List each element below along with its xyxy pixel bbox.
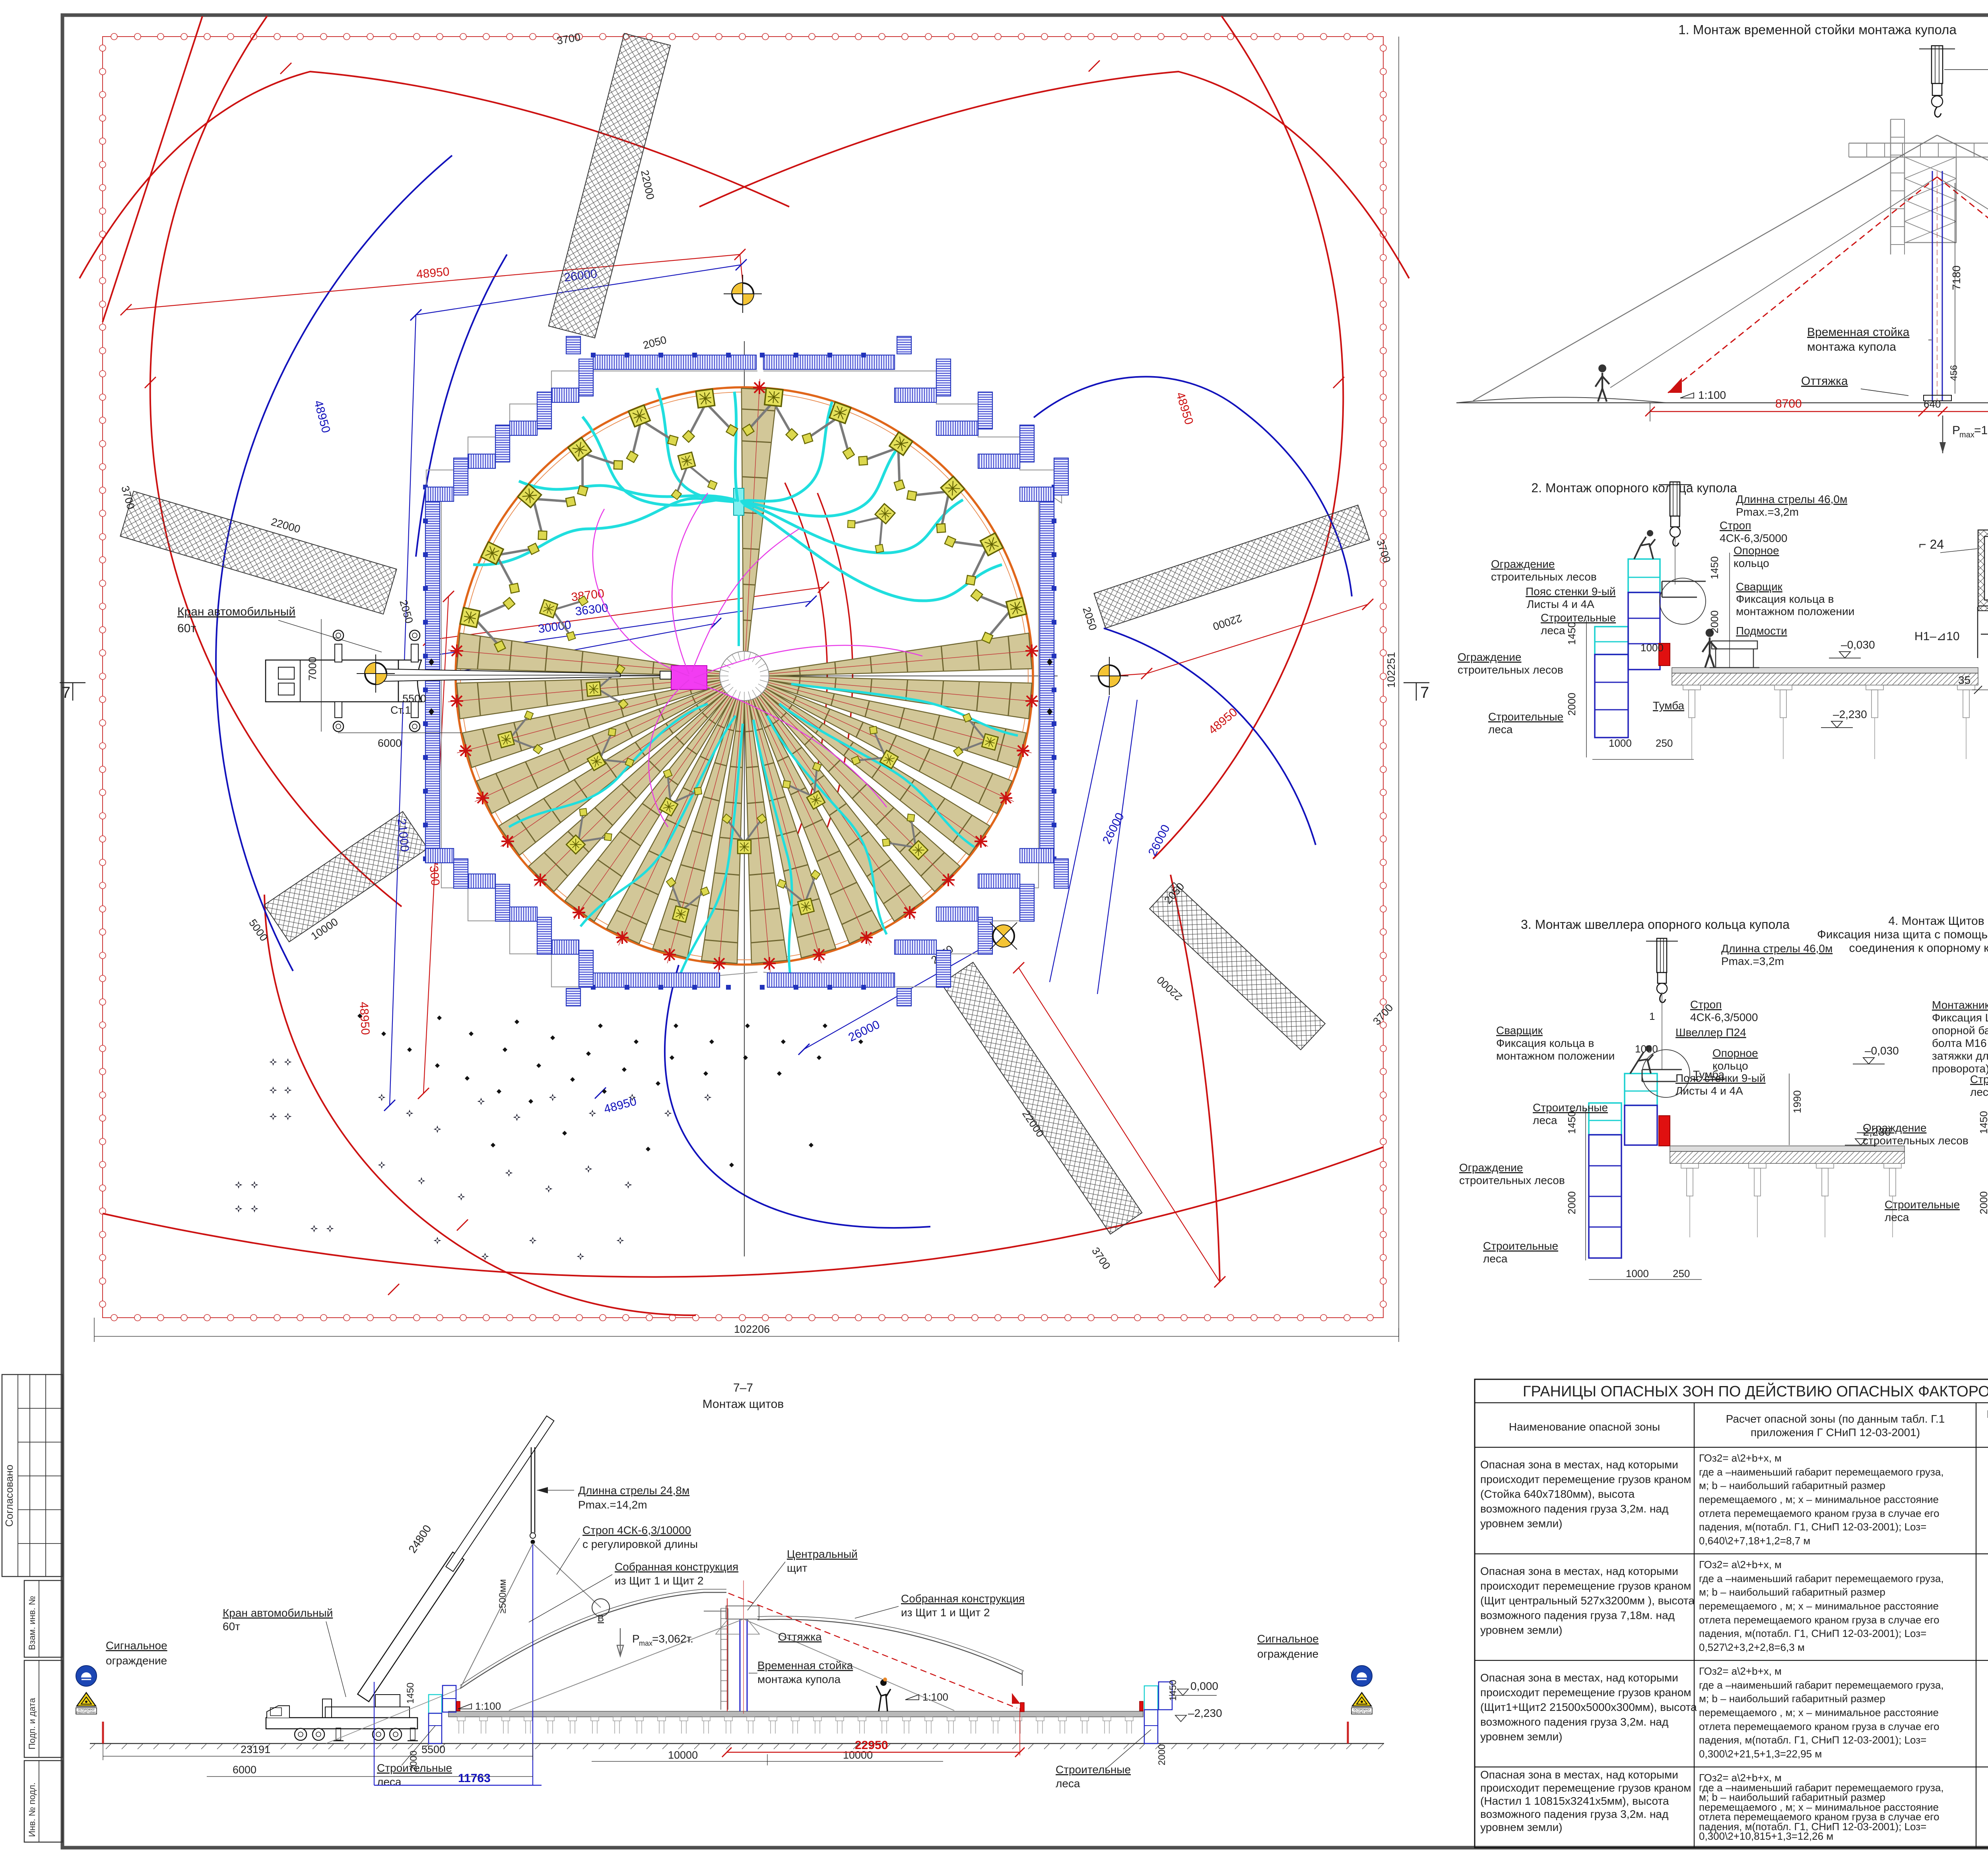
svg-text:7–7: 7–7 xyxy=(733,1381,753,1394)
svg-text:Инв. № подл.: Инв. № подл. xyxy=(27,1782,37,1837)
svg-text:–0,030: –0,030 xyxy=(1865,1045,1899,1057)
svg-text:возможного падения груза 3,2м.: возможного падения груза 3,2м. над xyxy=(1480,1503,1668,1515)
svg-text:2000: 2000 xyxy=(1566,1191,1578,1214)
svg-text:1:100: 1:100 xyxy=(475,1700,501,1712)
svg-text:456: 456 xyxy=(1949,365,1959,381)
svg-text:происходит перемещение грузов: происходит перемещение грузов краном xyxy=(1480,1473,1691,1485)
svg-text:Пояс стенки 9-ый: Пояс стенки 9-ый xyxy=(1526,585,1616,598)
svg-text:35: 35 xyxy=(1958,674,1971,686)
svg-text:Сигнальное: Сигнальное xyxy=(106,1639,167,1652)
svg-text:10000: 10000 xyxy=(668,1749,698,1761)
svg-text:перемещаемого , м; х – минимал: перемещаемого , м; х – минимальное расст… xyxy=(1699,1707,1939,1718)
svg-text:(Щит1+Щит2 21500х5000х300мм),: (Щит1+Щит2 21500х5000х300мм), высота xyxy=(1480,1701,1697,1713)
svg-text:48950: 48950 xyxy=(357,1002,372,1035)
svg-text:60т: 60т xyxy=(223,1620,240,1633)
svg-text:Оттяжка: Оттяжка xyxy=(778,1631,822,1643)
svg-text:где а –наименьший габарит пере: где а –наименьший габарит перемещаемого … xyxy=(1699,1679,1944,1691)
svg-text:Фиксация Щита 1 и 2 на: Фиксация Щита 1 и 2 на xyxy=(1932,1012,1988,1024)
svg-text:падения, м(потабл. Г1, СНиП 12: падения, м(потабл. Г1, СНиП 12-03-2001);… xyxy=(1699,1734,1926,1746)
svg-text:7180: 7180 xyxy=(1950,266,1963,290)
svg-text:7000: 7000 xyxy=(307,657,318,681)
svg-text:1:100: 1:100 xyxy=(1698,389,1726,401)
svg-text:Опорное: Опорное xyxy=(1712,1047,1758,1059)
svg-text:Н1–⊿10: Н1–⊿10 xyxy=(1914,630,1960,643)
svg-text:монтажном положении: монтажном положении xyxy=(1736,605,1854,617)
svg-text:1: 1 xyxy=(1649,1010,1655,1022)
svg-text:Тумба: Тумба xyxy=(1693,1068,1725,1081)
svg-text:падения, м(потабл. Г1, СНиП 12: падения, м(потабл. Г1, СНиП 12-03-2001);… xyxy=(1699,1627,1926,1639)
svg-text:5500: 5500 xyxy=(402,693,426,705)
svg-text:640: 640 xyxy=(1924,398,1941,410)
svg-text:=3,062т.: =3,062т. xyxy=(652,1633,693,1645)
svg-text:леса: леса xyxy=(1488,723,1513,736)
svg-text:ГРАНИЦЫ ОПАСНЫХ ЗОН ПО ДЕЙСТВИ: ГРАНИЦЫ ОПАСНЫХ ЗОН ПО ДЕЙСТВИЮ ОПАСНЫХ … xyxy=(1523,1382,1988,1400)
svg-text:где а –наименьший габарит пере: где а –наименьший габарит перемещаемого … xyxy=(1699,1573,1944,1584)
svg-text:отлета перемещаемого краном гр: отлета перемещаемого краном груза в случ… xyxy=(1699,1507,1939,1519)
svg-text:щит: щит xyxy=(787,1562,808,1574)
svg-text:строительных лесов: строительных лесов xyxy=(1459,1174,1565,1186)
svg-text:Наименование опасной зоны: Наименование опасной зоны xyxy=(1509,1421,1660,1433)
svg-text:леса: леса xyxy=(1885,1211,1909,1223)
svg-text:Длинна стрелы 46,0м: Длинна стрелы 46,0м xyxy=(1736,493,1847,505)
svg-text:1:100: 1:100 xyxy=(922,1691,948,1703)
svg-text:⌐ 24: ⌐ 24 xyxy=(1919,537,1944,551)
svg-text:P: P xyxy=(1952,424,1960,437)
svg-text:Строп 4СК-6,3/10000: Строп 4СК-6,3/10000 xyxy=(582,1524,691,1536)
svg-text:Расчет опасной зоны (по данным: Расчет опасной зоны (по данным табл. Г.1 xyxy=(1726,1413,1945,1425)
svg-text:0,300\2+10,815+1,3=12,26 м: 0,300\2+10,815+1,3=12,26 м xyxy=(1699,1830,1833,1842)
svg-text:Строительные: Строительные xyxy=(1970,1073,1988,1085)
svg-text:с регулировкой длины: с регулировкой длины xyxy=(582,1538,698,1550)
svg-text:Строп: Строп xyxy=(1690,998,1722,1011)
svg-text:7: 7 xyxy=(62,684,70,701)
svg-text:Подмости: Подмости xyxy=(1736,625,1787,637)
svg-text:max: max xyxy=(639,1639,652,1647)
svg-text:6000: 6000 xyxy=(378,737,402,749)
svg-text:Тумба: Тумба xyxy=(1653,699,1685,712)
svg-text:Pmax.=3,2m: Pmax.=3,2m xyxy=(1736,506,1799,518)
svg-text:Фиксация кольца в: Фиксация кольца в xyxy=(1736,593,1834,605)
svg-text:Кран автомобильный: Кран автомобильный xyxy=(177,605,295,618)
svg-text:max: max xyxy=(1959,431,1974,439)
svg-text:Опасная зона в местах, над кот: Опасная зона в местах, над которыми xyxy=(1480,1769,1678,1781)
svg-text:–2,230: –2,230 xyxy=(1833,708,1867,720)
svg-text:0,640\2+7,18+1,2=8,7 м: 0,640\2+7,18+1,2=8,7 м xyxy=(1699,1535,1810,1547)
svg-text:отлета перемещаемого краном гр: отлета перемещаемого краном груза в случ… xyxy=(1699,1614,1939,1626)
svg-text:монтажа купола: монтажа купола xyxy=(757,1673,841,1685)
svg-text:60т: 60т xyxy=(177,622,196,635)
svg-text:Опорное: Опорное xyxy=(1734,544,1779,557)
svg-text:2000: 2000 xyxy=(1566,693,1578,716)
svg-text:Временная стойка: Временная стойка xyxy=(1807,326,1910,339)
svg-text:В: В xyxy=(598,1613,604,1624)
svg-text:2000: 2000 xyxy=(1978,1191,1988,1214)
svg-text:P: P xyxy=(632,1633,640,1645)
svg-text:возможного падения груза 3,2м.: возможного падения груза 3,2м. над xyxy=(1480,1716,1668,1728)
svg-text:Взам. инв. №: Взам. инв. № xyxy=(27,1596,37,1650)
svg-text:1000: 1000 xyxy=(1626,1268,1649,1279)
svg-text:приложения Г СНиП 12-03-2001): приложения Г СНиП 12-03-2001) xyxy=(1751,1426,1920,1439)
svg-text:кольцо: кольцо xyxy=(1734,557,1769,569)
svg-text:(Стойка 640х7180мм), высота: (Стойка 640х7180мм), высота xyxy=(1480,1488,1635,1500)
svg-text:Строительные: Строительные xyxy=(1483,1240,1558,1252)
svg-text:Строп: Строп xyxy=(1720,519,1751,532)
svg-text:из Щит 1 и Щит 2: из Щит 1 и Щит 2 xyxy=(901,1606,990,1619)
svg-text:Временная стойка: Временная стойка xyxy=(757,1659,853,1672)
svg-text:0,300\2+21,5+1,3=22,95 м: 0,300\2+21,5+1,3=22,95 м xyxy=(1699,1748,1822,1760)
svg-text:строительных лесов: строительных лесов xyxy=(1491,571,1597,583)
svg-text:250: 250 xyxy=(1673,1268,1690,1279)
svg-text:ГОз2= а\2+b+x, м: ГОз2= а\2+b+x, м xyxy=(1699,1452,1782,1464)
svg-text:1990: 1990 xyxy=(1791,1090,1803,1113)
svg-text:Кран автомобильный: Кран автомобильный xyxy=(223,1607,333,1619)
svg-text:возможного падения груза 3,2м.: возможного падения груза 3,2м. над xyxy=(1480,1808,1668,1820)
svg-text:опорной балке с помощью: опорной балке с помощью xyxy=(1932,1024,1988,1037)
svg-text:уровнем земли): уровнем земли) xyxy=(1480,1821,1562,1833)
svg-text:Pmax.=14,2m: Pmax.=14,2m xyxy=(578,1499,647,1511)
svg-text:леса: леса xyxy=(1541,624,1565,637)
svg-text:4СК-6,3/5000: 4СК-6,3/5000 xyxy=(1720,532,1787,544)
svg-text:22950: 22950 xyxy=(855,1739,888,1752)
svg-text:перемещаемого , м; х – минимал: перемещаемого , м; х – минимальное расст… xyxy=(1699,1600,1939,1612)
svg-text:затяжки для свободного: затяжки для свободного xyxy=(1932,1050,1988,1062)
svg-text:250: 250 xyxy=(1656,737,1673,749)
svg-text:Ст.1: Ст.1 xyxy=(390,704,411,716)
svg-text:Строительные: Строительные xyxy=(1056,1763,1131,1776)
svg-text:1450: 1450 xyxy=(1168,1680,1178,1701)
svg-text:Опасная зона в местах, над кот: Опасная зона в местах, над которыми xyxy=(1480,1565,1678,1577)
svg-text:ГОз2= а\2+b+x, м: ГОз2= а\2+b+x, м xyxy=(1699,1559,1782,1571)
svg-text:=1,0т.: =1,0т. xyxy=(1974,424,1988,437)
svg-text:Фиксация кольца в: Фиксация кольца в xyxy=(1496,1037,1594,1049)
svg-text:1450: 1450 xyxy=(1708,556,1720,579)
svg-text:возможного падения груза 7,18м: возможного падения груза 7,18м. над xyxy=(1480,1609,1675,1621)
svg-text:Центральный: Центральный xyxy=(787,1548,858,1560)
svg-text:м; b – наибольший габаритный р: м; b – наибольший габаритный размер xyxy=(1699,1479,1885,1491)
svg-text:ограждение: ограждение xyxy=(1257,1648,1318,1660)
svg-text:м; b – наибольший габаритный р: м; b – наибольший габаритный размер xyxy=(1699,1693,1885,1705)
svg-text:Строительные: Строительные xyxy=(1541,612,1616,624)
svg-text:Опасная зона в местах, над кот: Опасная зона в местах, над которыми xyxy=(1480,1458,1678,1471)
svg-text:Сварщик: Сварщик xyxy=(1736,581,1783,593)
svg-text:Монтаж щитов: Монтаж щитов xyxy=(703,1398,784,1411)
svg-text:леса: леса xyxy=(1533,1114,1557,1126)
svg-text:строительных лесов: строительных лесов xyxy=(1863,1134,1969,1147)
svg-text:леса: леса xyxy=(377,1776,402,1788)
svg-text:3. Монтаж швеллера опорного ко: 3. Монтаж швеллера опорного кольца купол… xyxy=(1521,917,1790,932)
svg-text:Длинна стрелы 46,0м: Длинна стрелы 46,0м xyxy=(1721,942,1833,955)
svg-text:болта М16 с гайкой (без: болта М16 с гайкой (без xyxy=(1932,1037,1988,1049)
svg-text:Ограждение: Ограждение xyxy=(1863,1122,1926,1134)
svg-text:–0,030: –0,030 xyxy=(1841,639,1875,651)
svg-text:из Щит 1 и Щит 2: из Щит 1 и Щит 2 xyxy=(615,1575,704,1587)
svg-text:леса: леса xyxy=(1483,1252,1508,1265)
svg-text:монтажа купола: монтажа купола xyxy=(1807,340,1896,353)
svg-text:1450: 1450 xyxy=(1566,1111,1578,1134)
svg-text:уровнем земли): уровнем земли) xyxy=(1480,1517,1562,1530)
svg-text:Строительные: Строительные xyxy=(1488,711,1563,723)
svg-text:монтажном положении: монтажном положении xyxy=(1496,1050,1615,1062)
svg-text:Согласовано: Согласовано xyxy=(3,1465,15,1527)
svg-text:1000: 1000 xyxy=(1635,1043,1658,1055)
svg-text:4СК-6,3/5000: 4СК-6,3/5000 xyxy=(1690,1011,1758,1023)
svg-text:Листы 4 и 4А: Листы 4 и 4А xyxy=(1675,1085,1743,1097)
svg-text:2000: 2000 xyxy=(1708,610,1720,633)
svg-text:Фиксация низа щита с помощью б: Фиксация низа щита с помощью болтового xyxy=(1817,928,1988,941)
svg-text:леса: леса xyxy=(1970,1086,1988,1098)
svg-text:2000: 2000 xyxy=(408,1751,419,1772)
svg-text:Листы 4 и 4А: Листы 4 и 4А xyxy=(1527,598,1594,610)
svg-text:102206: 102206 xyxy=(734,1323,770,1335)
svg-text:(Щит центральный 527х3200мм ),: (Щит центральный 527х3200мм ), высота xyxy=(1480,1594,1695,1607)
svg-text:соединения к опорному кольцу.: соединения к опорному кольцу. xyxy=(1849,942,1988,955)
svg-text:Ограждение: Ограждение xyxy=(1458,651,1521,663)
svg-text:леса: леса xyxy=(1056,1777,1080,1790)
svg-text:1000: 1000 xyxy=(1609,737,1632,749)
svg-text:ограждение: ограждение xyxy=(106,1654,167,1667)
svg-text:где а –наименьший габарит пере: где а –наименьший габарит перемещаемого … xyxy=(1699,1466,1944,1478)
svg-text:перемещаемого , м; х – минимал: перемещаемого , м; х – минимальное расст… xyxy=(1699,1493,1939,1505)
svg-text:5500: 5500 xyxy=(421,1744,445,1755)
svg-text:происходит перемещение грузов: происходит перемещение грузов краном xyxy=(1480,1580,1691,1592)
svg-text:4. Монтаж Щитов: 4. Монтаж Щитов xyxy=(1888,914,1984,928)
svg-text:7: 7 xyxy=(1420,684,1429,701)
svg-text:8700: 8700 xyxy=(1775,397,1802,410)
svg-text:6000: 6000 xyxy=(233,1764,256,1776)
svg-text:Длинна стрелы 24,8м: Длинна стрелы 24,8м xyxy=(578,1484,689,1497)
svg-text:падения, м(потабл. Г1, СНиП 12: падения, м(потабл. Г1, СНиП 12-03-2001);… xyxy=(1699,1521,1926,1533)
svg-text:102251: 102251 xyxy=(1385,652,1397,688)
svg-text:Швеллер П24: Швеллер П24 xyxy=(1675,1026,1746,1039)
svg-text:2000: 2000 xyxy=(1157,1744,1167,1765)
svg-text:11763: 11763 xyxy=(458,1772,491,1785)
svg-text:–2,230: –2,230 xyxy=(1188,1707,1222,1719)
svg-text:0,000: 0,000 xyxy=(1190,1680,1218,1692)
svg-text:1000: 1000 xyxy=(1640,642,1664,654)
svg-text:Собранная конструкция: Собранная конструкция xyxy=(615,1561,738,1573)
svg-text:(Настил 1 10815х3241х5мм), выс: (Настил 1 10815х3241х5мм), высота xyxy=(1480,1795,1669,1807)
svg-text:Подп. и дата: Подп. и дата xyxy=(27,1698,37,1749)
svg-text:1450: 1450 xyxy=(1566,622,1578,645)
svg-text:≥500мм: ≥500мм xyxy=(497,1579,508,1613)
svg-text:Строительные: Строительные xyxy=(1885,1198,1960,1211)
svg-text:2. Монтаж опорного кольца купо: 2. Монтаж опорного кольца купола xyxy=(1531,481,1737,495)
svg-text:23191: 23191 xyxy=(241,1744,270,1755)
svg-text:Сигнальное: Сигнальное xyxy=(1257,1633,1319,1645)
svg-text:Сварщик: Сварщик xyxy=(1496,1024,1543,1037)
svg-text:уровнем земли): уровнем земли) xyxy=(1480,1624,1562,1636)
svg-text:происходит перемещение грузов: происходит перемещение грузов краном xyxy=(1480,1686,1691,1699)
svg-text:Собранная конструкция: Собранная конструкция xyxy=(901,1592,1025,1605)
svg-text:1450: 1450 xyxy=(405,1683,416,1704)
svg-text:1. Монтаж временной стойки мон: 1. Монтаж временной стойки монтажа купол… xyxy=(1678,22,1957,37)
svg-text:Оттяжка: Оттяжка xyxy=(1801,375,1848,388)
svg-text:Pmax.=3,2m: Pmax.=3,2m xyxy=(1721,955,1784,967)
svg-text:Ограждение: Ограждение xyxy=(1459,1161,1523,1174)
svg-text:Монтажник: Монтажник xyxy=(1932,999,1988,1011)
svg-text:происходит перемещение грузов: происходит перемещение грузов краном xyxy=(1480,1782,1691,1794)
svg-text:Опасная зона в местах, над кот: Опасная зона в местах, над которыми xyxy=(1480,1672,1678,1684)
svg-text:м; b – наибольший габаритный р: м; b – наибольший габаритный размер xyxy=(1699,1586,1885,1598)
svg-text:Ограждение: Ограждение xyxy=(1491,558,1555,570)
svg-text:строительных лесов: строительных лесов xyxy=(1458,664,1563,676)
svg-text:ГОз2= а\2+b+x, м: ГОз2= а\2+b+x, м xyxy=(1699,1665,1782,1677)
svg-text:1450: 1450 xyxy=(1978,1111,1988,1134)
svg-text:уровнем земли): уровнем земли) xyxy=(1480,1730,1562,1743)
svg-text:0,527\2+3,2+2,8=6,3 м: 0,527\2+3,2+2,8=6,3 м xyxy=(1699,1641,1805,1653)
svg-text:отлета перемещаемого краном гр: отлета перемещаемого краном груза в случ… xyxy=(1699,1720,1939,1732)
